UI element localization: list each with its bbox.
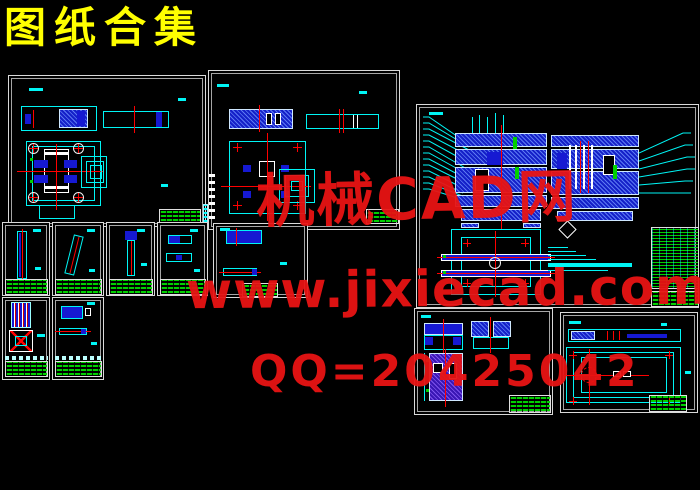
blue-insert [64,175,77,183]
watermark-site-name: 机械CAD网 [255,149,578,239]
title-block [5,279,48,295]
ejector-pin [583,145,585,189]
leader-line [479,115,480,133]
blue-cap [81,329,86,334]
blue-insert [243,191,251,198]
leader-line [487,117,488,133]
blue-insert [25,114,31,124]
sheet-part-1[interactable] [2,222,50,296]
title-block [159,209,201,223]
green-marker [30,158,33,161]
page-title: 图纸合集 [4,0,204,55]
blue-insert [34,175,48,183]
centerline [613,331,614,340]
small-detail [85,308,91,316]
projection-line [39,218,75,219]
table-row [5,356,48,360]
blue-part-view [61,306,83,319]
hole-mark [293,143,302,152]
blue-insert [77,111,85,126]
pin-line [353,115,354,128]
hole-mark [233,201,242,210]
part-view [127,240,135,276]
guide-pillar [73,192,84,203]
blue-insert [169,236,180,243]
green-marker [443,255,446,258]
annotation-mark [89,269,95,272]
hole-mark [569,397,577,405]
title-block [109,279,153,295]
annotation-mark [161,184,168,187]
blue-insert [19,233,21,277]
corner-label [29,88,43,91]
blue-head [125,231,137,240]
corner-label [569,321,581,324]
table-row [55,356,102,360]
blue-insert [64,160,77,168]
hatched-section [471,321,489,337]
title-block [649,395,687,412]
step-note-line [548,247,568,248]
cad-preview-canvas: 图纸合集 [0,0,700,490]
hatched-section [571,331,595,340]
hatched-section [493,321,511,337]
sheet-part-2[interactable] [52,222,104,296]
annotation-mark [359,91,367,94]
sheet-part-3[interactable] [106,222,155,296]
centerline [339,109,340,133]
striped-part-view [11,302,31,328]
blue-strip [627,334,667,338]
leader-line [503,115,504,133]
centerline [56,144,57,210]
step-note-line [548,255,586,256]
green-pin [613,165,617,179]
sheet-part-7[interactable] [52,297,104,380]
ejector-pin [591,145,593,189]
centerline [580,141,581,193]
hole-mark [463,239,471,247]
slot-cutout [266,113,272,125]
slot-cutout [275,113,281,125]
centerline [619,331,620,340]
sheet-die-plate-top-left[interactable] [8,75,206,227]
centerline [607,331,608,340]
annotation-mark [685,371,691,374]
centerline [259,105,260,132]
centerline [134,106,135,133]
centerline [33,110,34,128]
title-block [509,395,551,413]
blue-insert [243,165,251,172]
title-block [55,361,102,377]
edge-table-strip [209,171,215,219]
corner-label [87,229,95,232]
annotation-mark [35,267,41,270]
centerline [236,228,237,246]
leader-lines-right [639,123,697,203]
hole-mark [521,239,529,247]
title-block [5,361,48,377]
hole-mark [233,143,242,152]
blue-insert [156,112,162,127]
green-pin [513,137,517,149]
blue-insert [176,255,182,260]
blue-insert [425,337,433,345]
guide-pillar [28,143,39,154]
leader-line [472,117,473,133]
corner-label [190,229,198,232]
annotation-mark [91,342,97,345]
hatched-section [229,109,293,129]
blue-insert [453,337,461,345]
pin-line [357,115,358,128]
blue-insert [34,160,48,168]
annotation-mark [141,263,147,266]
stepped-outline [90,165,102,179]
green-marker [30,180,33,183]
corner-label [87,302,95,305]
sheet-part-6[interactable] [2,297,50,380]
annotation-mark [37,334,45,337]
corner-label [137,229,145,232]
leader-line [495,113,496,133]
step-note-line [548,251,576,252]
centerline [588,141,589,193]
centerline [22,229,23,281]
corner-label [33,229,41,232]
annotation-mark [661,323,667,326]
section-slab [551,135,639,147]
watermark-url: www.jixiecad.com [186,258,700,321]
annotation-mark [178,98,186,101]
hole-mark [665,351,673,359]
title-block [55,279,102,295]
guide-pillar [28,192,39,203]
watermark-qq: QQ=20425042 [250,346,640,397]
inner-outline [15,336,27,346]
guide-pillar [73,143,84,154]
centerline [343,109,344,133]
corner-label [217,84,229,87]
